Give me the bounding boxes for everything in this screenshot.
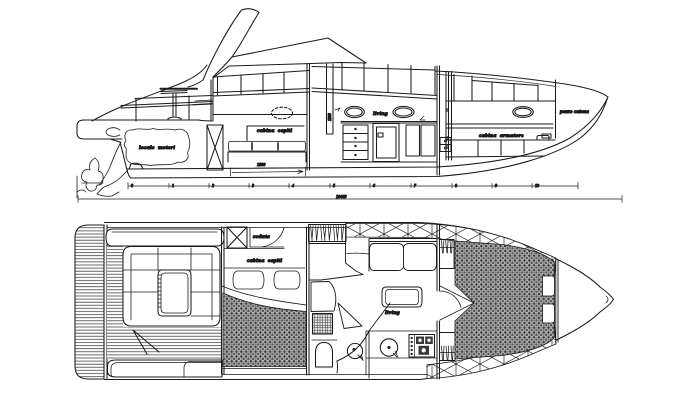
svg-text:9: 9 bbox=[495, 183, 497, 188]
svg-text:cabina armatore: cabina armatore bbox=[479, 133, 524, 139]
svg-text:10440: 10440 bbox=[336, 194, 347, 199]
svg-text:cabina ospiti: cabina ospiti bbox=[257, 128, 292, 134]
svg-text:7: 7 bbox=[414, 183, 417, 188]
svg-text:6: 6 bbox=[373, 183, 375, 188]
svg-text:living: living bbox=[373, 111, 388, 117]
svg-text:seduta: seduta bbox=[252, 234, 270, 240]
svg-text:5: 5 bbox=[333, 183, 335, 188]
svg-text:1500: 1500 bbox=[257, 162, 266, 167]
svg-text:cabina ospiti: cabina ospiti bbox=[247, 258, 282, 264]
svg-text:living: living bbox=[385, 310, 400, 316]
svg-text:3: 3 bbox=[251, 183, 254, 188]
svg-text:1: 1 bbox=[172, 183, 174, 188]
svg-text:0: 0 bbox=[131, 183, 133, 188]
svg-text:1300: 1300 bbox=[328, 113, 332, 121]
svg-text:8: 8 bbox=[455, 183, 457, 188]
svg-text:pozzo catena: pozzo catena bbox=[559, 109, 589, 115]
svg-text:2: 2 bbox=[211, 183, 214, 188]
svg-text:locale motori: locale motori bbox=[139, 145, 175, 151]
svg-text:4: 4 bbox=[291, 183, 294, 188]
svg-text:10: 10 bbox=[535, 183, 539, 188]
